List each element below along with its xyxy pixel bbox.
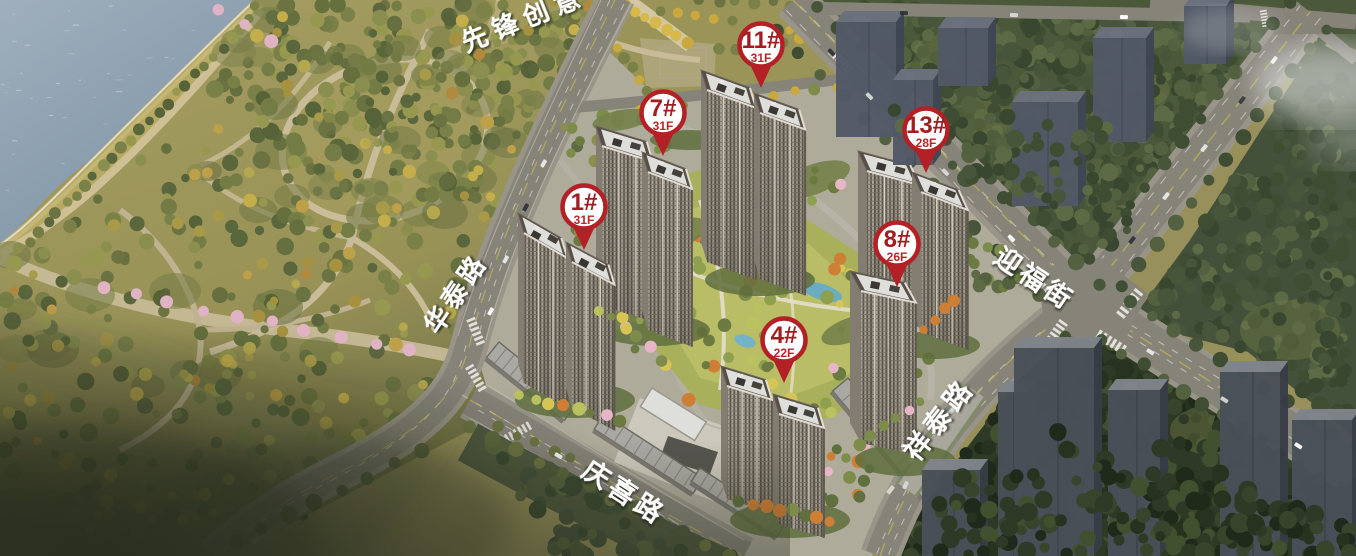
svg-text:11#: 11# xyxy=(742,27,781,54)
svg-text:31F: 31F xyxy=(653,119,674,133)
svg-text:31F: 31F xyxy=(574,213,595,227)
svg-text:1#: 1# xyxy=(571,189,598,216)
svg-text:26F: 26F xyxy=(887,250,908,264)
svg-text:13#: 13# xyxy=(906,112,946,139)
svg-text:7#: 7# xyxy=(650,95,677,122)
svg-text:31F: 31F xyxy=(751,51,772,65)
svg-text:8#: 8# xyxy=(884,226,911,253)
svg-text:4#: 4# xyxy=(771,322,798,349)
svg-text:22F: 22F xyxy=(774,346,795,360)
svg-text:28F: 28F xyxy=(916,136,937,150)
